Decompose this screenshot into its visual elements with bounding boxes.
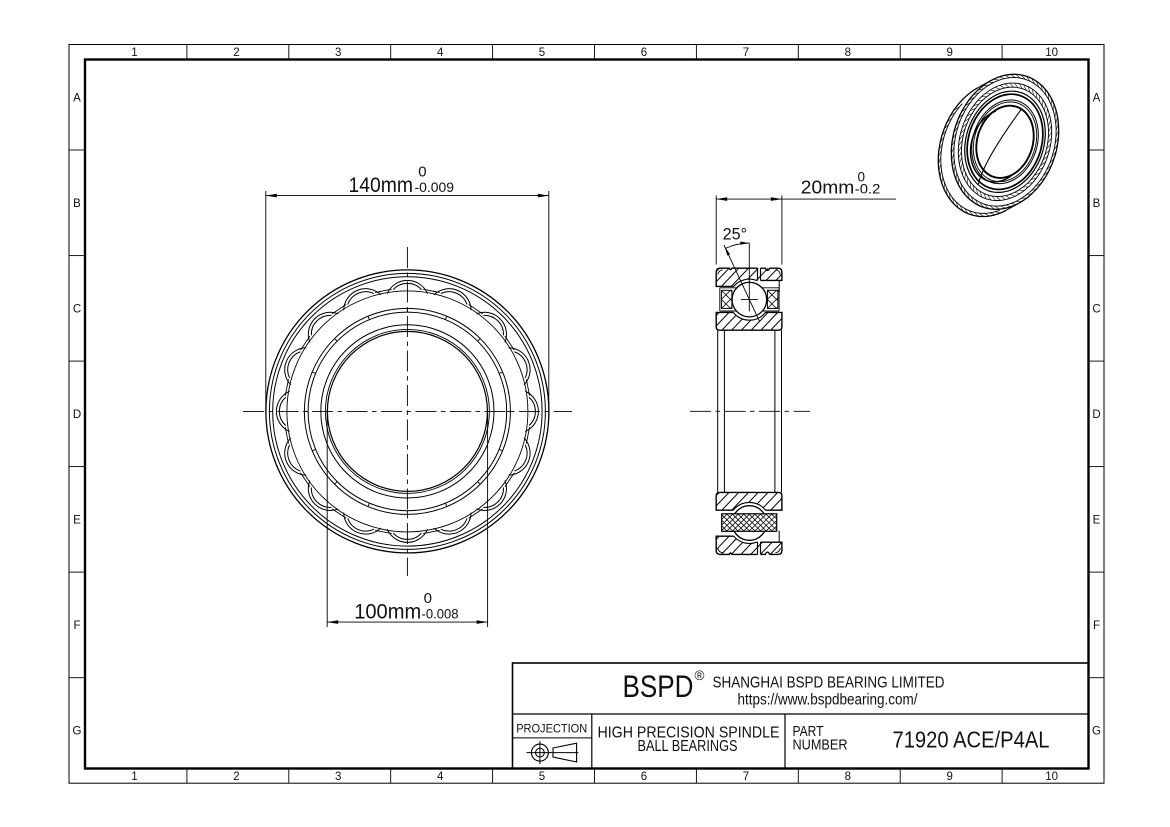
svg-text:4: 4 [437, 47, 444, 59]
svg-text:PROJECTION: PROJECTION [516, 722, 587, 736]
svg-text:A: A [73, 92, 81, 104]
svg-text:-0.009: -0.009 [415, 180, 455, 196]
svg-text:7: 7 [743, 771, 749, 783]
svg-text:D: D [1092, 409, 1100, 421]
svg-text:140mm: 140mm [349, 174, 414, 197]
svg-text:6: 6 [641, 47, 647, 59]
svg-text:B: B [1093, 198, 1101, 210]
svg-text:F: F [1093, 620, 1100, 632]
svg-text:E: E [73, 514, 81, 526]
svg-text:5: 5 [539, 771, 545, 783]
svg-text:100mm: 100mm [354, 601, 421, 624]
svg-text:B: B [73, 198, 81, 210]
svg-text:7: 7 [743, 47, 749, 59]
svg-text:BALL BEARINGS: BALL BEARINGS [638, 738, 738, 755]
svg-text:1: 1 [131, 771, 137, 783]
svg-text:5: 5 [539, 47, 545, 59]
svg-text:A: A [1093, 92, 1101, 104]
svg-text:10: 10 [1045, 47, 1058, 59]
svg-text:-0.008: -0.008 [422, 607, 459, 623]
svg-text:10: 10 [1045, 771, 1058, 783]
svg-text:25°: 25° [723, 225, 748, 243]
svg-text:NUMBER: NUMBER [793, 738, 848, 754]
svg-text:®: ® [695, 668, 705, 683]
svg-text:8: 8 [845, 771, 851, 783]
svg-text:9: 9 [946, 771, 952, 783]
svg-text:G: G [73, 725, 82, 737]
svg-text:E: E [1093, 514, 1101, 526]
svg-text:F: F [73, 620, 80, 632]
svg-text:0: 0 [418, 164, 426, 181]
svg-text:-0.2: -0.2 [855, 182, 881, 197]
svg-text:BSPD: BSPD [623, 668, 694, 704]
svg-text:71920 ACE/P4AL: 71920 ACE/P4AL [893, 727, 1050, 753]
svg-text:3: 3 [335, 771, 341, 783]
svg-text:20mm: 20mm [801, 178, 855, 198]
svg-text:SHANGHAI BSPD BEARING LIMITED: SHANGHAI BSPD BEARING LIMITED [713, 675, 945, 692]
svg-text:8: 8 [845, 47, 851, 59]
svg-text:2: 2 [233, 47, 239, 59]
svg-text:C: C [1092, 303, 1100, 315]
svg-text:2: 2 [233, 771, 239, 783]
svg-text:1: 1 [131, 47, 137, 59]
svg-text:0: 0 [424, 590, 432, 607]
svg-text:D: D [73, 409, 81, 421]
svg-text:9: 9 [946, 47, 952, 59]
svg-text:C: C [73, 303, 81, 315]
svg-text:https://www.bspdbearing.com/: https://www.bspdbearing.com/ [738, 692, 919, 709]
svg-text:6: 6 [641, 771, 647, 783]
svg-text:3: 3 [335, 47, 341, 59]
svg-text:4: 4 [437, 771, 444, 783]
svg-text:G: G [1092, 725, 1101, 737]
